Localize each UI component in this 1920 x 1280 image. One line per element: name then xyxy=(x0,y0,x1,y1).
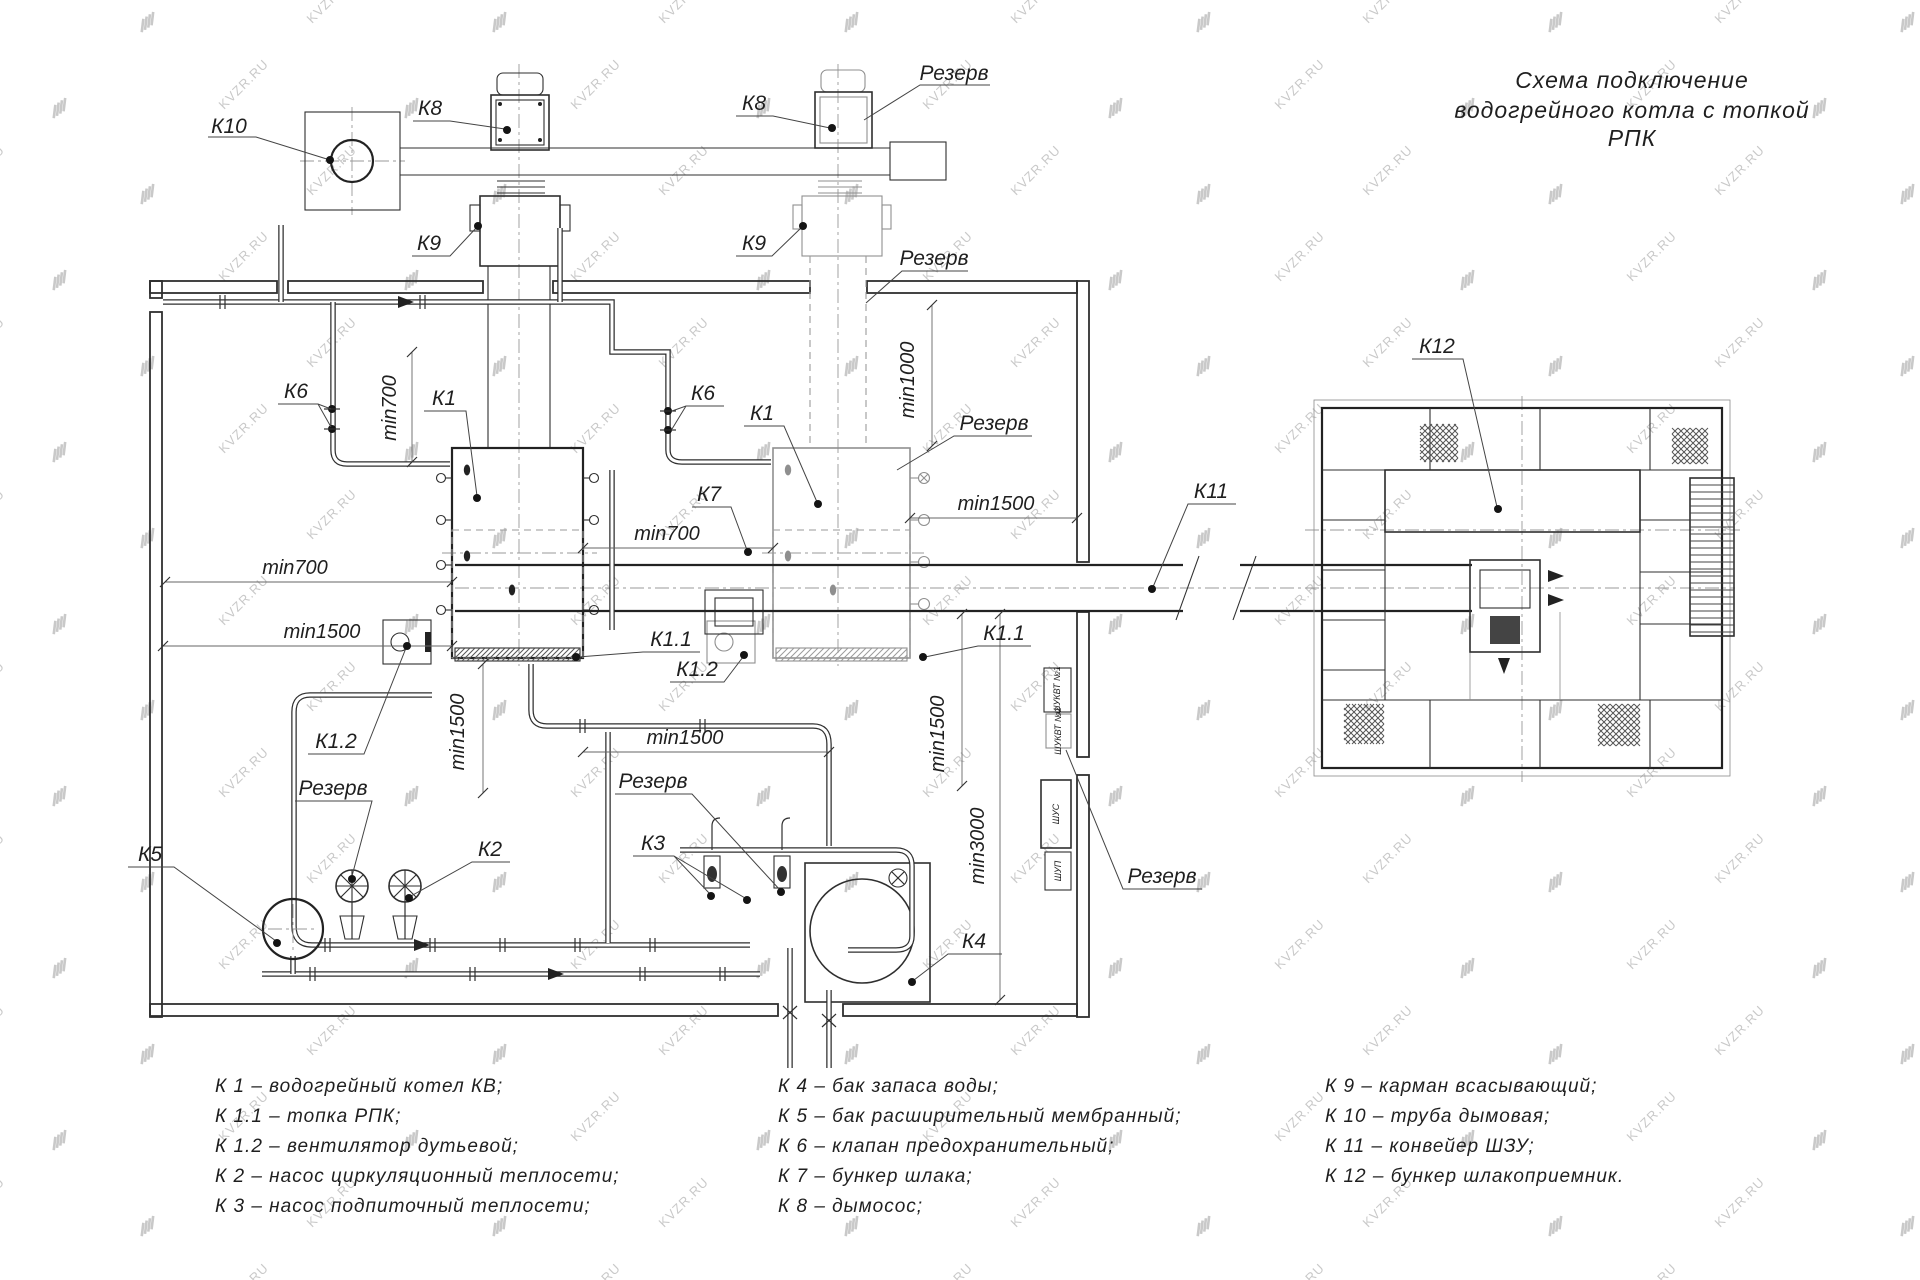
title-block: Схема подключение водогрейного котла с т… xyxy=(1454,67,1809,151)
svg-text:KVZR.RU: KVZR.RU xyxy=(656,1174,712,1230)
svg-text:KVZR.RU: KVZR.RU xyxy=(1272,1088,1328,1144)
label-k5: К5 xyxy=(138,843,162,866)
svg-text:KVZR.RU: KVZR.RU xyxy=(304,142,360,198)
dim-min3000-vertical: min3000 xyxy=(967,808,989,885)
svg-text:KVZR.RU: KVZR.RU xyxy=(0,658,7,714)
label-k1-1-main: К1.1 xyxy=(650,628,692,651)
title-line-3: РПК xyxy=(1608,125,1657,151)
svg-text:KVZR.RU: KVZR.RU xyxy=(656,314,712,370)
svg-text:KVZR.RU: KVZR.RU xyxy=(1712,830,1768,886)
svg-text:KVZR.RU: KVZR.RU xyxy=(304,0,360,26)
label-k1-2-reserve: К1.2 xyxy=(676,658,718,681)
svg-text:KVZR.RU: KVZR.RU xyxy=(1272,916,1328,972)
legend-item: К 1 – водогрейный котел КВ; xyxy=(215,1076,503,1097)
conveyor-drive-unit xyxy=(1470,560,1564,674)
label-k7: К7 xyxy=(697,483,722,506)
svg-text:KVZR.RU: KVZR.RU xyxy=(0,0,7,26)
circulation-pump-k2-reserve xyxy=(389,870,421,939)
legend-item: К 12 – бункер шлакоприемник. xyxy=(1325,1166,1624,1187)
svg-text:KVZR.RU: KVZR.RU xyxy=(1360,0,1416,26)
label-k8-main: К8 xyxy=(418,97,442,120)
svg-text:KVZR.RU: KVZR.RU xyxy=(1360,830,1416,886)
suction-pocket-k9-main xyxy=(470,196,570,448)
label-k12: К12 xyxy=(1419,335,1455,358)
svg-text:KVZR.RU: KVZR.RU xyxy=(920,1260,976,1280)
legend-item: К 1.2 – вентилятор дутьевой; xyxy=(215,1136,519,1157)
svg-text:KVZR.RU: KVZR.RU xyxy=(1712,0,1768,26)
legend-item: К 6 – клапан предохранительный; xyxy=(778,1136,1114,1157)
svg-text:KVZR.RU: KVZR.RU xyxy=(0,486,7,542)
cabinet-label: ШУКВТ №1 xyxy=(1052,666,1062,714)
label-k9-reserve: К9 xyxy=(742,232,766,255)
ladder xyxy=(1690,478,1734,636)
label-k1-2-main: К1.2 xyxy=(315,730,357,753)
label-k2: К2 xyxy=(478,838,502,861)
dim-min700-left: min700 xyxy=(262,557,328,579)
svg-text:KVZR.RU: KVZR.RU xyxy=(1008,1002,1064,1058)
svg-text:KVZR.RU: KVZR.RU xyxy=(0,142,7,198)
dim-min1500-vertical-right: min1500 xyxy=(927,696,949,773)
svg-text:KVZR.RU: KVZR.RU xyxy=(1008,314,1064,370)
svg-text:KVZR.RU: KVZR.RU xyxy=(216,400,272,456)
label-k6-main: К6 xyxy=(284,380,308,403)
dim-min1500-right: min1500 xyxy=(958,493,1035,515)
legend-item: К 3 – насос подпиточный теплосети; xyxy=(215,1196,591,1217)
svg-text:KVZR.RU: KVZR.RU xyxy=(304,1002,360,1058)
label-k10: К10 xyxy=(211,115,247,138)
svg-text:KVZR.RU: KVZR.RU xyxy=(1272,228,1328,284)
label-k1-reserve: К1 xyxy=(750,402,774,425)
label-k6-reserve: К6 xyxy=(691,382,715,405)
svg-text:KVZR.RU: KVZR.RU xyxy=(568,1088,624,1144)
dim-min1000-vertical: min1000 xyxy=(897,342,919,419)
legend-item: К 5 – бак расширительный мембранный; xyxy=(778,1106,1182,1127)
svg-text:KVZR.RU: KVZR.RU xyxy=(1360,314,1416,370)
dimension-labels: min700 min700 min700 min1500 min1500 min… xyxy=(262,342,1034,885)
legend-item: К 10 – труба дымовая; xyxy=(1325,1106,1550,1127)
svg-text:KVZR.RU: KVZR.RU xyxy=(1624,572,1680,628)
svg-text:KVZR.RU: KVZR.RU xyxy=(216,744,272,800)
svg-text:KVZR.RU: KVZR.RU xyxy=(1712,658,1768,714)
svg-text:KVZR.RU: KVZR.RU xyxy=(1624,228,1680,284)
dim-min1500-center: min1500 xyxy=(647,727,724,749)
control-cabinets: ШУКВТ №1 ШУКВТ №2 ШУС ШУП xyxy=(1041,666,1071,890)
svg-text:KVZR.RU: KVZR.RU xyxy=(216,1260,272,1280)
drawing-canvas: KVZR.RUKVZR.RUKVZR.RUKVZR.RUKVZR.RUKVZR.… xyxy=(0,0,1920,1280)
svg-text:KVZR.RU: KVZR.RU xyxy=(216,56,272,112)
svg-text:KVZR.RU: KVZR.RU xyxy=(304,658,360,714)
legend-item: К 2 – насос циркуляционный теплосети; xyxy=(215,1166,620,1187)
svg-text:KVZR.RU: KVZR.RU xyxy=(1712,314,1768,370)
svg-text:KVZR.RU: KVZR.RU xyxy=(1272,1260,1328,1280)
label-k9-main: К9 xyxy=(417,232,441,255)
svg-text:KVZR.RU: KVZR.RU xyxy=(1272,744,1328,800)
label-k3: К3 xyxy=(641,832,665,855)
label-reserve-3: Резерв xyxy=(959,412,1028,435)
svg-text:KVZR.RU: KVZR.RU xyxy=(568,572,624,628)
boiler-k1-main xyxy=(437,448,599,661)
label-k11: К11 xyxy=(1194,480,1228,503)
expansion-tank-k5 xyxy=(263,899,323,959)
svg-text:KVZR.RU: KVZR.RU xyxy=(568,744,624,800)
svg-text:KVZR.RU: KVZR.RU xyxy=(1008,142,1064,198)
legend: К 1 – водогрейный котел КВ; К 1.1 – топк… xyxy=(215,1076,1624,1217)
svg-text:KVZR.RU: KVZR.RU xyxy=(0,314,7,370)
svg-text:KVZR.RU: KVZR.RU xyxy=(1360,486,1416,542)
dim-min700-vertical: min700 xyxy=(379,375,401,441)
label-k1-1-reserve: К1.1 xyxy=(983,622,1025,645)
legend-item: К 8 – дымосос; xyxy=(778,1196,923,1217)
dim-min700-mid: min700 xyxy=(634,523,700,545)
label-k4: К4 xyxy=(962,930,986,953)
svg-text:KVZR.RU: KVZR.RU xyxy=(216,572,272,628)
makeup-pump-k3 xyxy=(704,818,720,888)
legend-item: К 1.1 – топка РПК; xyxy=(215,1106,401,1127)
cabinet-label: ШУС xyxy=(1051,803,1061,824)
label-k1-main: К1 xyxy=(432,387,456,410)
cabinet-label: ШУП xyxy=(1053,860,1063,881)
svg-text:KVZR.RU: KVZR.RU xyxy=(216,228,272,284)
svg-text:KVZR.RU: KVZR.RU xyxy=(1008,1174,1064,1230)
suction-pocket-k9-reserve xyxy=(793,196,891,448)
legend-item: К 7 – бункер шлака; xyxy=(778,1166,973,1187)
svg-text:KVZR.RU: KVZR.RU xyxy=(1712,1002,1768,1058)
svg-text:KVZR.RU: KVZR.RU xyxy=(1360,1002,1416,1058)
label-reserve-5: Резерв xyxy=(618,770,687,793)
legend-item: К 4 – бак запаса воды; xyxy=(778,1076,999,1097)
svg-text:KVZR.RU: KVZR.RU xyxy=(304,486,360,542)
svg-text:KVZR.RU: KVZR.RU xyxy=(568,1260,624,1280)
svg-text:KVZR.RU: KVZR.RU xyxy=(1712,142,1768,198)
makeup-pump-k3-reserve xyxy=(774,818,790,888)
blower-fan-k1-2-reserve xyxy=(707,621,755,663)
svg-text:KVZR.RU: KVZR.RU xyxy=(0,830,7,886)
dim-min1500-vertical-left: min1500 xyxy=(447,694,469,771)
svg-text:KVZR.RU: KVZR.RU xyxy=(1624,916,1680,972)
svg-text:KVZR.RU: KVZR.RU xyxy=(1272,572,1328,628)
svg-text:KVZR.RU: KVZR.RU xyxy=(656,1002,712,1058)
label-reserve-4: Резерв xyxy=(298,777,367,800)
svg-text:KVZR.RU: KVZR.RU xyxy=(0,1174,7,1230)
legend-item: К 9 – карман всасывающий; xyxy=(1325,1076,1597,1097)
svg-text:KVZR.RU: KVZR.RU xyxy=(656,0,712,26)
svg-text:KVZR.RU: KVZR.RU xyxy=(1624,1088,1680,1144)
cabinet-label: ШУКВТ №2 xyxy=(1053,707,1063,755)
legend-item: К 11 – конвейер ШЗУ; xyxy=(1325,1136,1535,1157)
title-line-1: Схема подключение xyxy=(1515,67,1749,93)
label-reserve-6: Резерв xyxy=(1127,865,1196,888)
dim-min1500-left: min1500 xyxy=(284,621,361,643)
svg-text:KVZR.RU: KVZR.RU xyxy=(0,1002,7,1058)
title-line-2: водогрейного котла с топкой xyxy=(1454,97,1809,123)
label-reserve-1: Резерв xyxy=(919,62,988,85)
svg-text:KVZR.RU: KVZR.RU xyxy=(568,56,624,112)
svg-text:KVZR.RU: KVZR.RU xyxy=(656,142,712,198)
label-reserve-2: Резерв xyxy=(899,247,968,270)
svg-text:KVZR.RU: KVZR.RU xyxy=(1624,1260,1680,1280)
svg-text:KVZR.RU: KVZR.RU xyxy=(1624,744,1680,800)
svg-text:KVZR.RU: KVZR.RU xyxy=(1360,658,1416,714)
boiler-k1-reserve xyxy=(773,448,930,661)
label-k8-reserve: К8 xyxy=(742,92,766,115)
svg-text:KVZR.RU: KVZR.RU xyxy=(568,228,624,284)
svg-text:KVZR.RU: KVZR.RU xyxy=(1360,142,1416,198)
svg-text:KVZR.RU: KVZR.RU xyxy=(1712,1174,1768,1230)
svg-text:KVZR.RU: KVZR.RU xyxy=(1008,0,1064,26)
svg-text:KVZR.RU: KVZR.RU xyxy=(1272,400,1328,456)
svg-text:KVZR.RU: KVZR.RU xyxy=(1272,56,1328,112)
